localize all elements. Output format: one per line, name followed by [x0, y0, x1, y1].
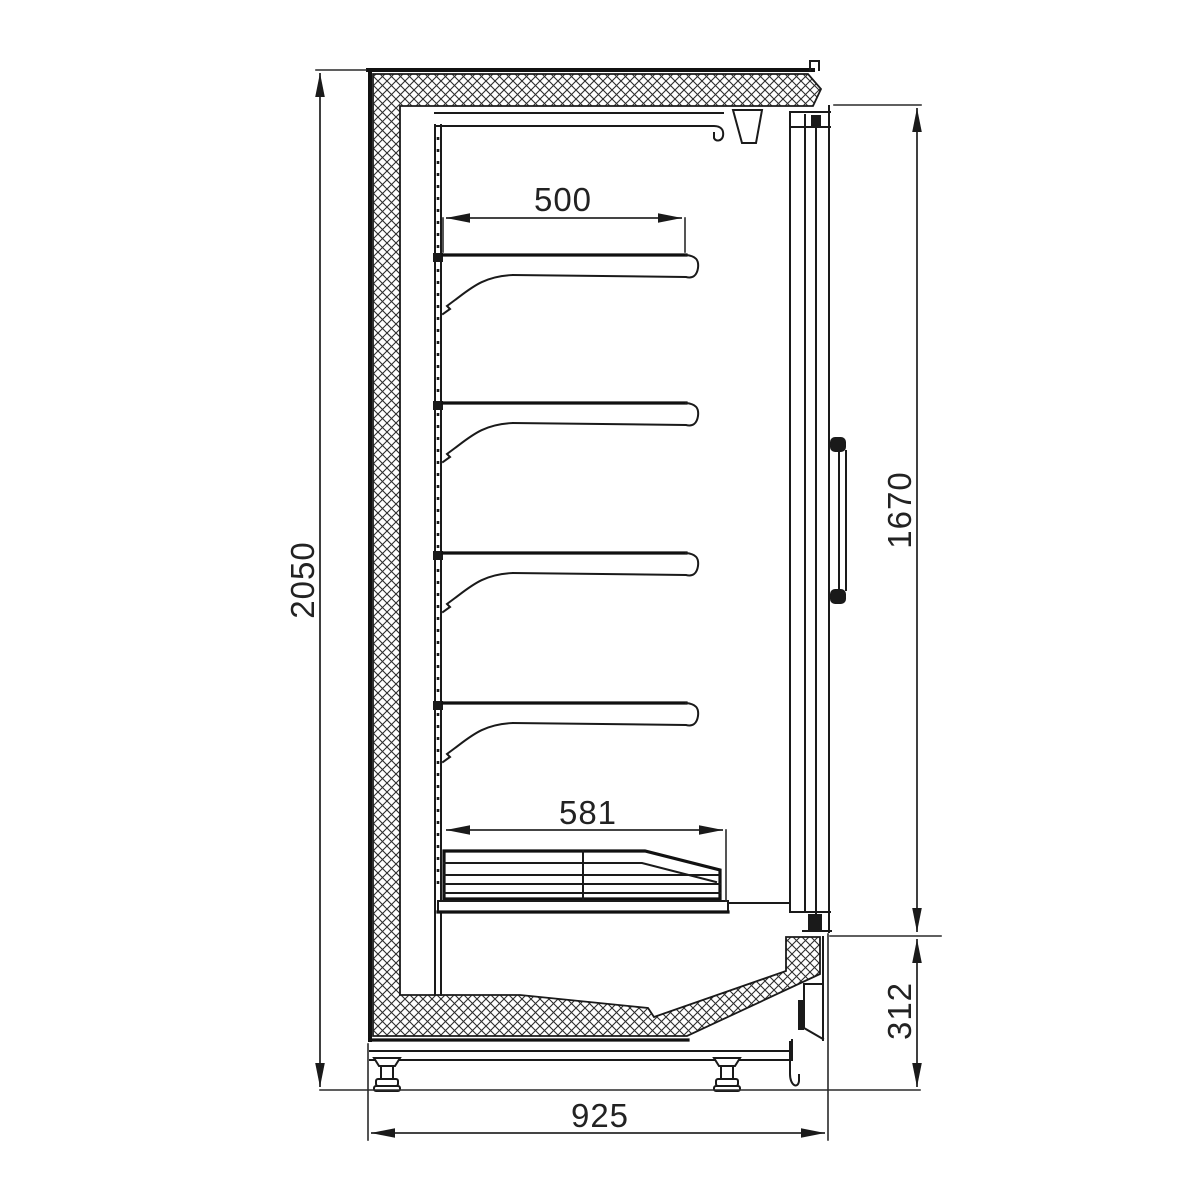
technical-drawing-canvas: 2050 1670 312 925 500 581: [0, 0, 1200, 1200]
door-sill-step: [804, 984, 823, 1039]
door-bottom-seal-block: [808, 914, 822, 930]
foot-left-flange: [374, 1058, 400, 1066]
foot-right-pad-upper: [716, 1079, 738, 1086]
levelling-foot-left: [374, 1058, 400, 1091]
dimension-label-base-height: 312: [881, 982, 918, 1040]
dimension-label-deck-depth: 581: [559, 794, 617, 831]
cabinet-section-drawing-page: 2050 1670 312 925 500 581: [0, 0, 1200, 1200]
shelf-1-bracket: [443, 275, 513, 314]
shelves: [433, 253, 698, 762]
canopy-tab: [733, 110, 762, 143]
shelf-4: [433, 701, 698, 762]
deck-support-strip: [438, 901, 728, 912]
shelf-3-bracket: [443, 573, 513, 612]
bottom-deck: [438, 851, 790, 912]
foot-right-stem: [721, 1066, 733, 1079]
door-top-hinge-block: [811, 115, 821, 127]
dimension-label-shelf-depth: 500: [534, 181, 592, 218]
shelf-1: [433, 253, 698, 314]
levelling-foot-right: [714, 1058, 740, 1091]
dimension-label-overall-height: 2050: [284, 541, 321, 618]
foot-left-pad-upper: [376, 1079, 398, 1086]
ceiling-line-lower-with-hook: [435, 126, 723, 140]
shelf-4-front-lip: [513, 703, 698, 726]
sill-block: [798, 1000, 804, 1030]
shelf-1-front-lip: [513, 255, 698, 278]
shelf-2-bracket: [443, 423, 513, 462]
foot-right-flange: [714, 1058, 740, 1066]
shelf-2-front-lip: [513, 403, 698, 426]
shelf-3-front-lip: [513, 553, 698, 576]
dimension-label-overall-depth: 925: [571, 1097, 629, 1134]
shelf-3: [433, 551, 698, 612]
foot-left-stem: [381, 1066, 393, 1079]
door-handle: [830, 437, 846, 604]
shelf-2: [433, 401, 698, 462]
dimension-label-door-height: 1670: [881, 471, 918, 548]
shelf-4-bracket: [443, 723, 513, 762]
glass-door: [790, 106, 846, 932]
